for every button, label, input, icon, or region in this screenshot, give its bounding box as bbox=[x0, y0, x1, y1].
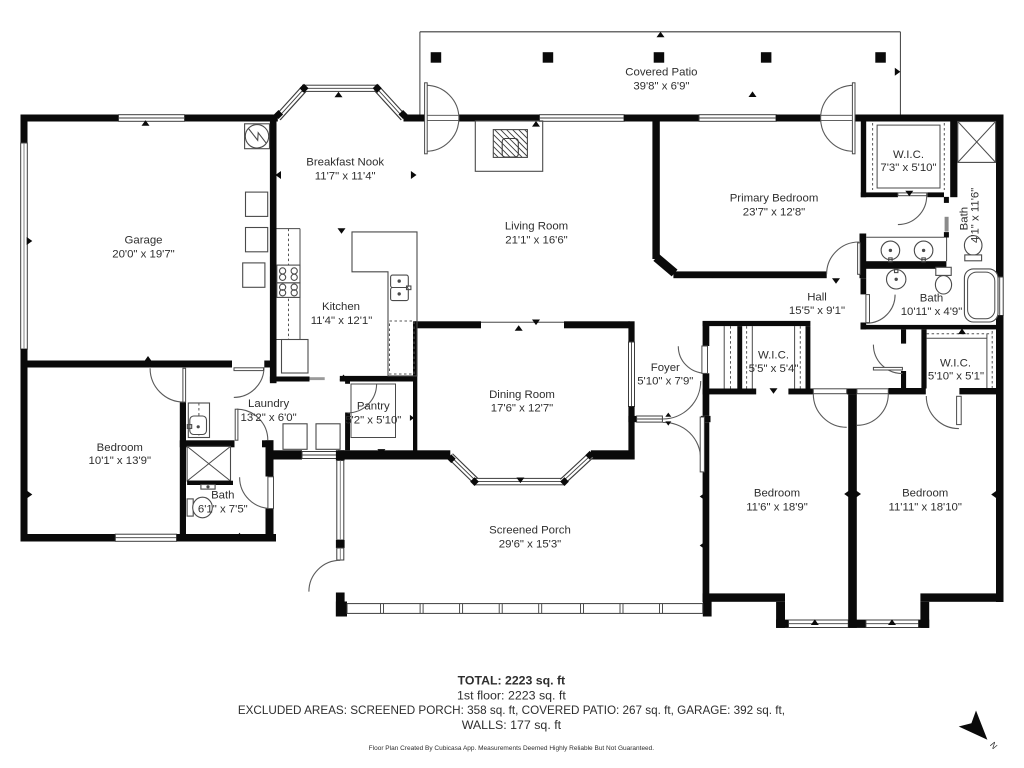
svg-text:6'1" x 7'5": 6'1" x 7'5" bbox=[198, 504, 248, 516]
svg-text:11'7" x 11'4": 11'7" x 11'4" bbox=[315, 171, 376, 183]
svg-text:Bath: Bath bbox=[920, 293, 943, 305]
svg-text:23'7" x 12'8": 23'7" x 12'8" bbox=[743, 207, 805, 219]
svg-text:Pantry: Pantry bbox=[357, 401, 390, 413]
svg-text:29'6" x 15'3": 29'6" x 15'3" bbox=[499, 538, 561, 550]
svg-text:WALLS: 177 sq. ft: WALLS: 177 sq. ft bbox=[462, 718, 562, 732]
svg-text:10'11" x 4'9": 10'11" x 4'9" bbox=[901, 306, 963, 318]
svg-text:W.I.C.: W.I.C. bbox=[758, 350, 789, 362]
svg-text:TOTAL: 2223 sq. ft: TOTAL: 2223 sq. ft bbox=[458, 674, 566, 688]
svg-text:Primary Bedroom: Primary Bedroom bbox=[730, 193, 819, 205]
svg-text:17'6" x 12'7": 17'6" x 12'7" bbox=[491, 403, 553, 415]
svg-text:Screened Porch: Screened Porch bbox=[489, 524, 571, 536]
svg-text:Kitchen: Kitchen bbox=[322, 301, 360, 313]
svg-text:Dining Room: Dining Room bbox=[489, 389, 555, 401]
svg-text:Foyer: Foyer bbox=[651, 362, 680, 374]
svg-text:Laundry: Laundry bbox=[248, 398, 289, 410]
svg-text:Floor Plan Created By Cubicasa: Floor Plan Created By Cubicasa App. Meas… bbox=[369, 745, 655, 752]
svg-text:11'6" x 18'9": 11'6" x 18'9" bbox=[746, 502, 808, 514]
svg-text:Covered Patio: Covered Patio bbox=[625, 67, 697, 79]
svg-text:W.I.C.: W.I.C. bbox=[893, 149, 924, 161]
svg-text:39'8" x 6'9": 39'8" x 6'9" bbox=[633, 81, 689, 93]
svg-text:5'5" x 5'4": 5'5" x 5'4" bbox=[749, 363, 799, 375]
svg-text:11'4" x 12'1": 11'4" x 12'1" bbox=[311, 315, 373, 327]
svg-text:4'1" x 11'6": 4'1" x 11'6" bbox=[970, 188, 982, 243]
svg-text:7'3" x 5'10": 7'3" x 5'10" bbox=[880, 162, 936, 174]
svg-text:10'1" x 13'9": 10'1" x 13'9" bbox=[89, 455, 151, 467]
svg-text:Breakfast Nook: Breakfast Nook bbox=[306, 157, 384, 169]
svg-text:21'1" x 16'6": 21'1" x 16'6" bbox=[505, 235, 567, 247]
svg-text:Hall: Hall bbox=[807, 292, 827, 304]
svg-text:EXCLUDED AREAS: SCREENED PORCH: EXCLUDED AREAS: SCREENED PORCH: 358 sq. … bbox=[238, 704, 785, 717]
svg-text:20'0" x 19'7": 20'0" x 19'7" bbox=[112, 249, 174, 261]
svg-text:W.I.C.: W.I.C. bbox=[940, 358, 971, 370]
svg-text:13'2" x 6'0": 13'2" x 6'0" bbox=[241, 412, 297, 424]
svg-text:Bedroom: Bedroom bbox=[97, 442, 143, 454]
svg-text:Garage: Garage bbox=[125, 235, 163, 247]
svg-text:15'5" x 9'1": 15'5" x 9'1" bbox=[789, 305, 845, 317]
svg-text:Bedroom: Bedroom bbox=[754, 488, 800, 500]
svg-text:Bath: Bath bbox=[211, 490, 234, 502]
svg-text:Living Room: Living Room bbox=[505, 221, 568, 233]
svg-text:5'10" x 7'9": 5'10" x 7'9" bbox=[637, 376, 693, 388]
svg-text:Bedroom: Bedroom bbox=[902, 488, 948, 500]
svg-text:1st floor: 2223 sq. ft: 1st floor: 2223 sq. ft bbox=[457, 688, 566, 702]
svg-text:5'2" x 5'10": 5'2" x 5'10" bbox=[345, 415, 401, 427]
svg-text:11'11" x 18'10": 11'11" x 18'10" bbox=[888, 502, 961, 514]
svg-text:5'10" x 5'1": 5'10" x 5'1" bbox=[928, 371, 984, 383]
svg-text:Bath: Bath bbox=[959, 207, 971, 230]
